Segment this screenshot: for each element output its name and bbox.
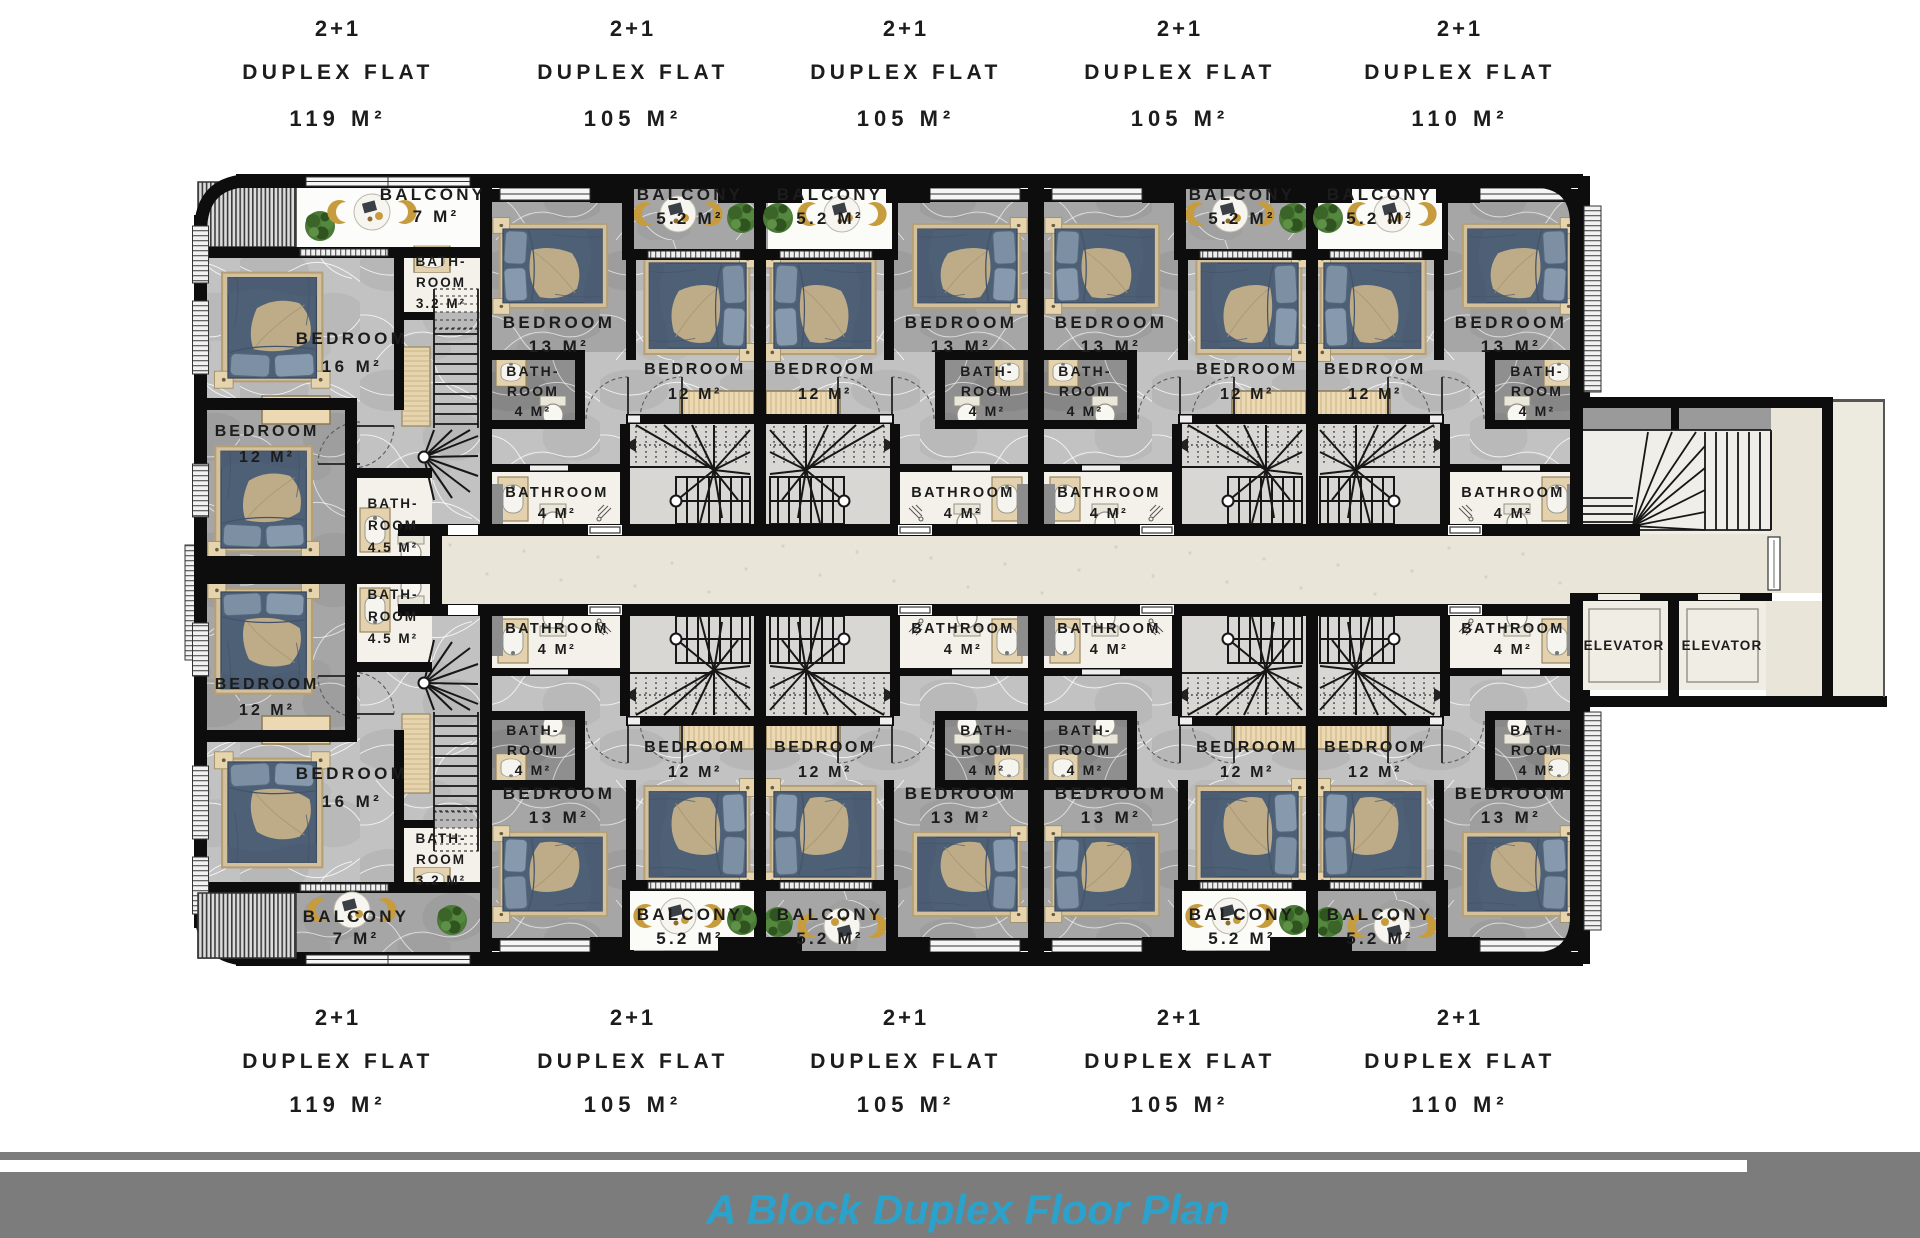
svg-text:7 M²: 7 M² [333,929,380,948]
svg-text:105 M²: 105 M² [584,1092,682,1117]
svg-text:DUPLEX FLAT: DUPLEX FLAT [242,61,434,84]
svg-text:DUPLEX FLAT: DUPLEX FLAT [810,1050,1002,1073]
svg-text:BALCONY: BALCONY [1189,185,1295,204]
svg-text:2+1: 2+1 [1437,16,1483,41]
svg-text:3.2 M²: 3.2 M² [416,296,466,311]
svg-text:BEDROOM: BEDROOM [1055,784,1168,803]
svg-text:BEDROOM: BEDROOM [905,313,1018,332]
svg-text:2+1: 2+1 [1437,1005,1483,1030]
svg-text:16 M²: 16 M² [322,792,382,811]
svg-text:7 M²: 7 M² [413,207,460,226]
svg-text:BEDROOM: BEDROOM [296,764,409,783]
svg-text:ROOM: ROOM [961,383,1013,399]
svg-text:BATHROOM: BATHROOM [1057,485,1161,501]
svg-text:BATHROOM: BATHROOM [505,621,609,637]
svg-text:DUPLEX FLAT: DUPLEX FLAT [1364,1050,1556,1073]
svg-text:2+1: 2+1 [315,16,361,41]
svg-text:5.2 M²: 5.2 M² [1346,929,1413,948]
svg-text:110 M²: 110 M² [1411,1092,1508,1117]
svg-text:2+1: 2+1 [1157,16,1203,41]
svg-text:ROOM: ROOM [1511,742,1563,758]
svg-text:13 M²: 13 M² [529,808,589,827]
svg-text:4 M²: 4 M² [538,642,577,658]
svg-text:119 M²: 119 M² [289,1092,386,1117]
svg-text:BATHROOM: BATHROOM [911,485,1015,501]
svg-text:2+1: 2+1 [883,1005,929,1030]
svg-text:2+1: 2+1 [1157,1005,1203,1030]
svg-text:4 M²: 4 M² [1067,762,1104,778]
svg-text:4.5 M²: 4.5 M² [368,540,418,555]
svg-text:ROOM: ROOM [368,518,418,533]
svg-text:BALCONY: BALCONY [303,907,409,926]
svg-text:ROOM: ROOM [368,609,418,624]
svg-text:BALCONY: BALCONY [380,185,486,204]
svg-text:12 M²: 12 M² [798,386,852,403]
svg-text:BALCONY: BALCONY [1189,905,1295,924]
svg-text:4 M²: 4 M² [944,642,983,658]
svg-text:5.2 M²: 5.2 M² [796,209,863,228]
svg-text:ROOM: ROOM [1511,383,1563,399]
svg-text:ROOM: ROOM [507,383,559,399]
svg-text:5.2 M²: 5.2 M² [656,929,723,948]
svg-text:ELEVATOR: ELEVATOR [1584,638,1665,653]
svg-text:ROOM: ROOM [507,742,559,758]
svg-text:DUPLEX FLAT: DUPLEX FLAT [1364,61,1556,84]
svg-text:2+1: 2+1 [610,1005,656,1030]
svg-text:ROOM: ROOM [1059,383,1111,399]
svg-text:BEDROOM: BEDROOM [215,676,320,693]
svg-text:2+1: 2+1 [315,1005,361,1030]
svg-text:4 M²: 4 M² [1090,642,1129,658]
svg-text:BATH-: BATH- [960,363,1014,379]
svg-text:3.2 M²: 3.2 M² [416,873,466,888]
svg-text:BATHROOM: BATHROOM [1461,621,1565,637]
svg-text:105 M²: 105 M² [857,1092,955,1117]
svg-text:13 M²: 13 M² [1481,337,1541,356]
svg-text:BALCONY: BALCONY [637,185,743,204]
svg-text:5.2 M²: 5.2 M² [656,209,723,228]
svg-text:DUPLEX FLAT: DUPLEX FLAT [1084,61,1276,84]
svg-text:13 M²: 13 M² [931,808,991,827]
svg-text:BATH-: BATH- [506,363,560,379]
svg-text:12 M²: 12 M² [1220,386,1274,403]
svg-text:5.2 M²: 5.2 M² [796,929,863,948]
svg-text:ROOM: ROOM [416,852,466,867]
svg-text:BATH-: BATH- [416,254,467,269]
svg-text:12 M²: 12 M² [798,764,852,781]
svg-text:4 M²: 4 M² [1494,642,1533,658]
svg-text:BEDROOM: BEDROOM [644,739,746,756]
svg-text:5.2 M²: 5.2 M² [1208,209,1275,228]
svg-text:BATHROOM: BATHROOM [505,485,609,501]
svg-text:ROOM: ROOM [416,275,466,290]
svg-text:BEDROOM: BEDROOM [1324,739,1426,756]
svg-text:12 M²: 12 M² [1348,386,1402,403]
svg-text:105 M²: 105 M² [1131,106,1229,131]
svg-text:BEDROOM: BEDROOM [1196,739,1298,756]
svg-text:BATH-: BATH- [368,496,419,511]
svg-text:BATH-: BATH- [1058,722,1112,738]
svg-text:5.2 M²: 5.2 M² [1208,929,1275,948]
svg-text:BATH-: BATH- [1510,722,1564,738]
svg-text:BEDROOM: BEDROOM [774,361,876,378]
svg-text:4 M²: 4 M² [1519,762,1556,778]
svg-text:DUPLEX FLAT: DUPLEX FLAT [537,61,729,84]
svg-text:BATH-: BATH- [1058,363,1112,379]
svg-text:4 M²: 4 M² [1494,506,1533,522]
svg-text:4 M²: 4 M² [1519,403,1556,419]
svg-text:13 M²: 13 M² [529,337,589,356]
svg-text:12 M²: 12 M² [668,386,722,403]
svg-text:4 M²: 4 M² [1090,506,1129,522]
svg-text:BEDROOM: BEDROOM [296,329,409,348]
svg-text:BEDROOM: BEDROOM [644,361,746,378]
svg-text:BEDROOM: BEDROOM [1324,361,1426,378]
svg-text:ROOM: ROOM [961,742,1013,758]
svg-text:ELEVATOR: ELEVATOR [1682,638,1763,653]
svg-text:BATH-: BATH- [416,831,467,846]
svg-text:BEDROOM: BEDROOM [1055,313,1168,332]
svg-text:BATH-: BATH- [960,722,1014,738]
svg-text:2+1: 2+1 [883,16,929,41]
svg-text:BATHROOM: BATHROOM [1461,485,1565,501]
svg-text:BALCONY: BALCONY [777,185,883,204]
svg-text:BEDROOM: BEDROOM [215,423,320,440]
svg-text:4 M²: 4 M² [515,762,552,778]
svg-text:BATHROOM: BATHROOM [911,621,1015,637]
svg-text:5.2 M²: 5.2 M² [1346,209,1413,228]
svg-text:2+1: 2+1 [610,16,656,41]
svg-text:DUPLEX FLAT: DUPLEX FLAT [242,1050,434,1073]
svg-text:BEDROOM: BEDROOM [503,313,616,332]
svg-text:13 M²: 13 M² [1081,337,1141,356]
svg-text:12 M²: 12 M² [239,702,295,719]
svg-text:13 M²: 13 M² [1481,808,1541,827]
svg-text:DUPLEX FLAT: DUPLEX FLAT [1084,1050,1276,1073]
svg-text:4 M²: 4 M² [515,403,552,419]
svg-text:BATHROOM: BATHROOM [1057,621,1161,637]
svg-text:105 M²: 105 M² [1131,1092,1229,1117]
svg-text:105 M²: 105 M² [584,106,682,131]
svg-text:BALCONY: BALCONY [1327,185,1433,204]
svg-text:4 M²: 4 M² [1067,403,1104,419]
svg-text:BEDROOM: BEDROOM [1196,361,1298,378]
svg-text:4 M²: 4 M² [969,403,1006,419]
svg-text:12 M²: 12 M² [239,449,295,466]
svg-text:BALCONY: BALCONY [777,905,883,924]
svg-text:13 M²: 13 M² [931,337,991,356]
svg-text:BEDROOM: BEDROOM [503,784,616,803]
svg-text:4 M²: 4 M² [538,506,577,522]
svg-text:12 M²: 12 M² [1220,764,1274,781]
svg-text:110 M²: 110 M² [1411,106,1508,131]
svg-text:DUPLEX FLAT: DUPLEX FLAT [537,1050,729,1073]
svg-text:A Block Duplex Floor Plan: A Block Duplex Floor Plan [705,1186,1230,1233]
svg-text:BALCONY: BALCONY [637,905,743,924]
svg-text:DUPLEX FLAT: DUPLEX FLAT [810,61,1002,84]
svg-text:12 M²: 12 M² [1348,764,1402,781]
svg-text:4 M²: 4 M² [944,506,983,522]
svg-text:13 M²: 13 M² [1081,808,1141,827]
svg-text:BEDROOM: BEDROOM [774,739,876,756]
svg-text:BEDROOM: BEDROOM [905,784,1018,803]
svg-text:BATH-: BATH- [506,722,560,738]
svg-text:BEDROOM: BEDROOM [1455,784,1568,803]
svg-text:BATH-: BATH- [368,587,419,602]
svg-text:ROOM: ROOM [1059,742,1111,758]
svg-text:4.5 M²: 4.5 M² [368,631,418,646]
svg-text:BATH-: BATH- [1510,363,1564,379]
svg-text:119 M²: 119 M² [289,106,386,131]
svg-text:BEDROOM: BEDROOM [1455,313,1568,332]
svg-text:12 M²: 12 M² [668,764,722,781]
svg-text:105 M²: 105 M² [857,106,955,131]
svg-text:BALCONY: BALCONY [1327,905,1433,924]
svg-text:16 M²: 16 M² [322,357,382,376]
svg-text:4 M²: 4 M² [969,762,1006,778]
